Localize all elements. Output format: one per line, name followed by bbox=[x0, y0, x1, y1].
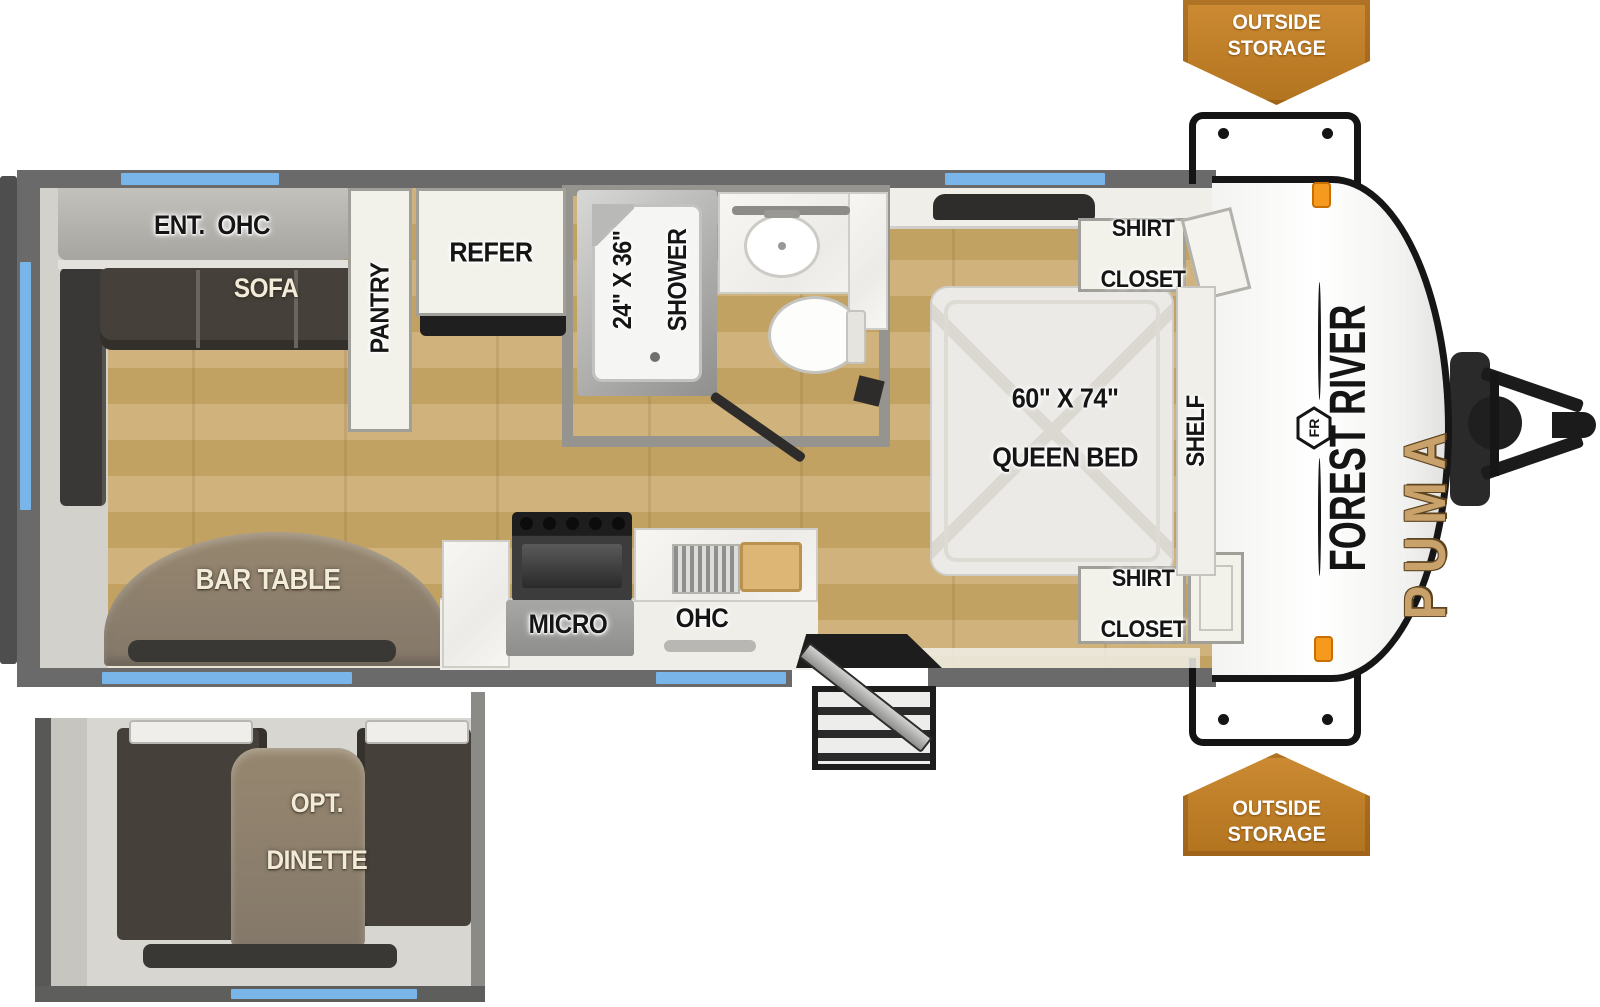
shirt-text: SHIRT bbox=[1112, 215, 1175, 242]
hitch-coupler bbox=[1552, 412, 1596, 438]
toilet-tank bbox=[846, 310, 866, 364]
dinette-left-wall bbox=[35, 718, 51, 994]
marker-light bbox=[1312, 182, 1331, 208]
rack-bolt bbox=[1322, 714, 1333, 725]
shower-text: SHOWER bbox=[662, 229, 692, 332]
bed-size-text: 60" X 74" bbox=[1012, 383, 1119, 414]
floorplan-canvas: OUTSIDE STORAGE OUTSIDE STORAGE ENT. OHC… bbox=[0, 0, 1600, 1007]
window bbox=[945, 173, 1105, 185]
outside-storage-banner-bottom: OUTSIDE STORAGE bbox=[1183, 753, 1370, 856]
stove-knob bbox=[520, 517, 533, 530]
shelf-label: SHELF bbox=[1183, 395, 1209, 467]
bed-text: QUEEN BED bbox=[992, 442, 1138, 473]
banner-text: OUTSIDE bbox=[1232, 10, 1321, 36]
stove bbox=[512, 512, 632, 602]
front-storage-rack-top bbox=[1189, 112, 1361, 184]
outside-storage-banner-top: OUTSIDE STORAGE bbox=[1183, 0, 1370, 105]
cutting-board bbox=[740, 542, 802, 592]
opt-dinette-inset: OPT. DINETTE bbox=[35, 692, 485, 1004]
rear-window bbox=[20, 262, 31, 510]
shirt-closet-top-label: SHIRT CLOSET bbox=[1078, 191, 1185, 317]
rack-bolt bbox=[1218, 714, 1229, 725]
dinette-cushion bbox=[365, 720, 469, 744]
oven-window bbox=[522, 544, 622, 588]
dinette-bench-right bbox=[357, 728, 471, 926]
shower-label: 24" X 36" SHOWER bbox=[582, 229, 718, 356]
ohc-label: OHC bbox=[676, 604, 729, 632]
micro-label: MICRO bbox=[529, 610, 608, 638]
bar-table-label: BAR TABLE bbox=[196, 565, 341, 595]
stove-knob bbox=[543, 517, 556, 530]
marker-light bbox=[1314, 636, 1333, 662]
window bbox=[102, 672, 352, 684]
queen-bed-label: 60" X 74" QUEEN BED bbox=[966, 355, 1138, 502]
hitch-cross-bar bbox=[1490, 372, 1499, 476]
cabinet-handle bbox=[664, 640, 756, 652]
refer-label: REFER bbox=[449, 237, 532, 266]
rear-bumper bbox=[0, 176, 17, 664]
bar-table-footrest bbox=[128, 640, 396, 662]
sink-faucet bbox=[764, 210, 800, 218]
rack-bolt bbox=[1218, 128, 1229, 139]
sofa-cushion-seam bbox=[196, 270, 200, 348]
shirt-closet-bottom-label: SHIRT CLOSET bbox=[1078, 541, 1185, 667]
kitchen-corner-counter bbox=[442, 540, 510, 668]
banner-text: STORAGE bbox=[1227, 36, 1325, 62]
shower-size-text: 24" X 36" bbox=[607, 230, 637, 329]
banner-text: STORAGE bbox=[1227, 822, 1325, 848]
dinette-footrest bbox=[143, 944, 397, 968]
opt-dinette-label: OPT. DINETTE bbox=[229, 761, 368, 903]
dinette-window bbox=[231, 989, 417, 999]
ent-ohc-label: ENT. OHC bbox=[154, 211, 270, 239]
sofa-label: SOFA bbox=[234, 274, 298, 302]
dinette-right-wall bbox=[471, 692, 485, 994]
dinette-cushion bbox=[129, 720, 253, 744]
refer-vent bbox=[420, 316, 566, 336]
closet-text: CLOSET bbox=[1101, 616, 1186, 643]
stove-knob bbox=[612, 517, 625, 530]
pantry-label: PANTRY bbox=[366, 263, 393, 354]
stove-knob bbox=[589, 517, 602, 530]
window bbox=[121, 173, 279, 185]
opt-text: OPT. bbox=[291, 788, 343, 818]
banner-text: OUTSIDE bbox=[1232, 796, 1321, 822]
bedroom-tv bbox=[933, 194, 1095, 220]
sink-drain bbox=[778, 242, 786, 250]
stove-knob bbox=[566, 517, 579, 530]
dinette-left-wall-face bbox=[51, 718, 87, 986]
window bbox=[656, 672, 786, 684]
dinette-text: DINETTE bbox=[267, 845, 368, 875]
drying-rack bbox=[672, 544, 740, 594]
closet-text: CLOSET bbox=[1101, 266, 1186, 293]
rack-bolt bbox=[1322, 128, 1333, 139]
shirt-text: SHIRT bbox=[1112, 565, 1175, 592]
